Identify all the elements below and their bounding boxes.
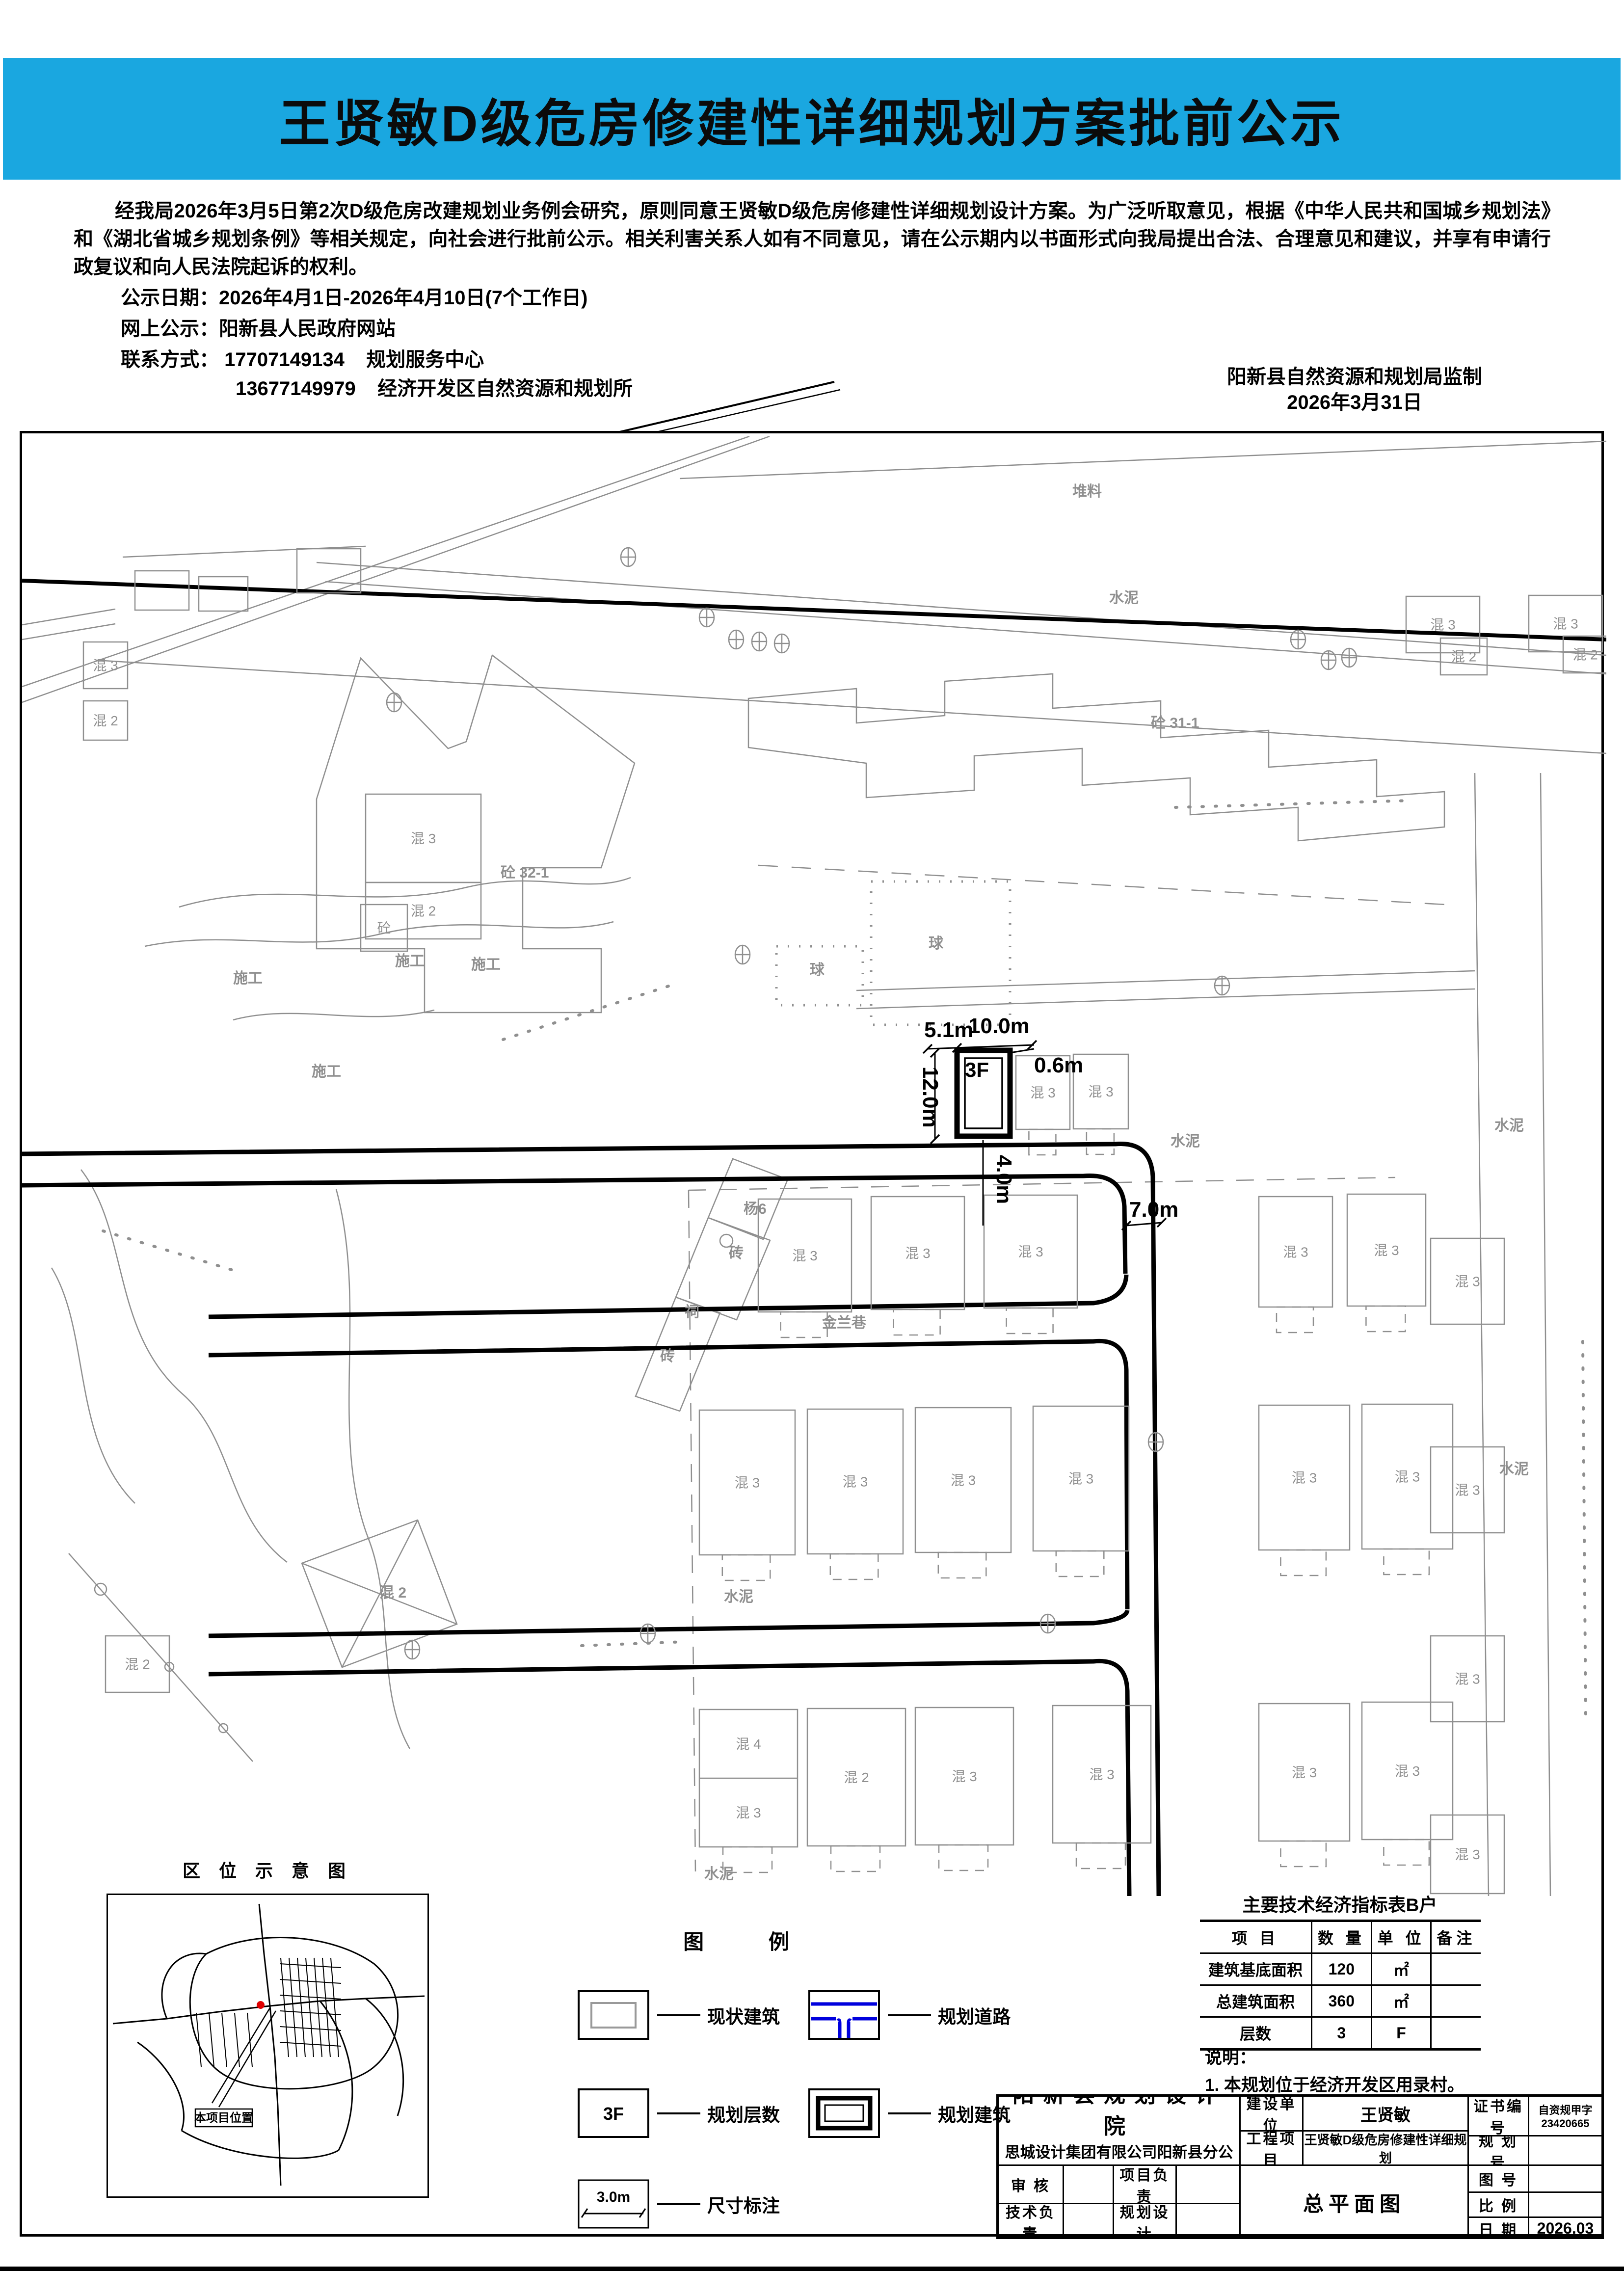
project-value: 王贤敏D级危房修建性详细规划	[1302, 2130, 1467, 2164]
utility-symbol	[735, 945, 750, 964]
building-label: 混 3	[1455, 1672, 1480, 1687]
existing-building-symbol	[577, 1989, 650, 2041]
location-diagram-title: 区 位 示 意 图	[150, 1857, 385, 1882]
fig-no-label: 图 号	[1467, 2164, 1528, 2191]
building-label: 混 3	[1430, 617, 1455, 633]
building-annex	[894, 1309, 940, 1335]
project-lead-value	[1175, 2164, 1239, 2203]
indicator-cell	[1431, 1985, 1481, 2017]
client-label: 建设单位	[1239, 2097, 1302, 2130]
building-annex	[1277, 1307, 1313, 1333]
utility-symbol	[1148, 1433, 1163, 1451]
building-annex	[1087, 1129, 1114, 1154]
dimension-text: 0.6m	[1034, 1053, 1083, 1077]
building-annex	[938, 1552, 986, 1578]
area-label: 砼 32-1	[501, 864, 549, 881]
building-label: 混 2	[93, 713, 118, 728]
legend-leader	[657, 2203, 700, 2205]
building-label: 混 2	[844, 1770, 869, 1785]
tech-lead-label: 技术负责	[999, 2203, 1063, 2239]
title-banner: 王贤敏D级危房修建性详细规划方案批前公示	[3, 58, 1621, 180]
legend-item-floors: 3F 规划层数	[577, 2087, 780, 2139]
building-label: 混 3	[1283, 1245, 1308, 1260]
boundary-line	[22, 581, 1606, 640]
building-label: 混 2	[411, 904, 436, 919]
indicator-cell: 360	[1311, 1985, 1371, 2017]
site-plan-canvas: 混 3混 2混 3混 2混 3混 2混 3混 2混 3混 3混 3混 3混 3混…	[22, 433, 1606, 1896]
building-label: 混 3	[1455, 1274, 1480, 1289]
planned-floor-label: 3F	[965, 1058, 989, 1081]
legend-item-planned-building: 规划建筑	[807, 2087, 1011, 2139]
utility-symbol	[752, 632, 767, 651]
building-annex	[1384, 1549, 1429, 1575]
project-location-label: 本项目位置	[194, 2111, 253, 2125]
legend-leader	[657, 2014, 700, 2016]
cert-value: 自资规甲字 23420665	[1528, 2097, 1601, 2135]
dimension-text: 12.0m	[918, 1067, 942, 1128]
building-label: 混 3	[735, 1475, 760, 1491]
utility-symbol	[405, 1640, 420, 1659]
area-label: 水泥	[1499, 1461, 1529, 1477]
utility-symbol	[1321, 651, 1336, 669]
existing-building	[199, 577, 248, 611]
contact-phone-1: 17707149134	[224, 349, 345, 371]
fig-no-value	[1528, 2164, 1601, 2191]
legend-label-dimension: 尺寸标注	[707, 2191, 780, 2217]
building-label: 混 3	[93, 658, 118, 673]
indicator-cell: 总建筑面积	[1200, 1985, 1311, 2017]
notice-page: 王贤敏D级危房修建性详细规划方案批前公示 经我局2026年3月5日第2次D级危房…	[0, 0, 1624, 2296]
indicator-cell: ㎡	[1371, 1953, 1431, 1985]
dimension-text: 7.0m	[1129, 1198, 1178, 1222]
building-label: 混 3	[736, 1805, 761, 1820]
building-annex	[831, 1846, 880, 1871]
area-label: 金兰巷	[822, 1314, 867, 1331]
building-label: 混 3	[1089, 1767, 1114, 1782]
svg-text:3.0m: 3.0m	[597, 2189, 630, 2205]
design-branch: 思城设计集团有限公司阳新县分公司	[999, 2140, 1239, 2164]
building-annex	[1056, 1551, 1104, 1576]
project-label: 工程项目	[1239, 2130, 1302, 2164]
drawing-sheet: 混 3混 2混 3混 2混 3混 2混 3混 2混 3混 3混 3混 3混 3混…	[20, 431, 1604, 2237]
cert-label: 证书编号	[1467, 2097, 1528, 2135]
review-value	[1063, 2164, 1113, 2203]
utility-symbol	[729, 630, 744, 649]
building-label: 混 3	[1455, 1483, 1480, 1498]
utility-symbol	[1040, 1614, 1055, 1633]
existing-building	[135, 571, 189, 610]
building-label: 混 3	[1455, 1847, 1480, 1862]
building-label: 混 3	[411, 831, 436, 846]
utility-symbol	[1291, 630, 1305, 649]
plan-design-value	[1175, 2203, 1239, 2239]
building-label: 混 2	[125, 1657, 150, 1672]
building-label: 混 3	[1395, 1763, 1420, 1779]
building-label: 混 3	[952, 1769, 977, 1784]
existing-linework	[22, 436, 1606, 1896]
legend-leader	[657, 2112, 700, 2114]
issue-date: 2026年3月31日	[1109, 390, 1600, 415]
building-label: 混 3	[843, 1474, 868, 1490]
area-label: 施工	[471, 957, 501, 973]
building-label: 混 3	[1030, 1085, 1055, 1100]
area-label: 水泥	[1494, 1118, 1524, 1134]
publicity-date-line: 公示日期：2026年4月1日-2026年4月10日(7个工作日)	[74, 284, 1551, 312]
planned-building-symbol	[807, 2087, 881, 2139]
building-annex	[1007, 1308, 1053, 1334]
notes: 说明： 1. 本规划位于经济开发区用录村。	[1205, 2044, 1597, 2099]
contact-org-1: 规划服务中心	[366, 349, 484, 371]
indicator-cell: 120	[1311, 1953, 1371, 1985]
web-publicity-line: 网上公示：阳新县人民政府网站	[74, 315, 1551, 343]
building-annex	[939, 1845, 988, 1870]
area-label: 祠	[685, 1304, 699, 1320]
building-annex	[781, 1312, 827, 1337]
indicator-header: 单 位	[1371, 1921, 1431, 1953]
building-label: 混 3	[951, 1473, 976, 1488]
ball-court-large	[871, 881, 1010, 1025]
building-annex	[1029, 1129, 1056, 1155]
area-label: 砖	[660, 1348, 675, 1364]
legend-label-existing: 现状建筑	[707, 2002, 780, 2029]
issuer-name: 阳新县自然资源和规划局监制	[1109, 364, 1600, 390]
page-bottom-edge	[0, 2267, 1624, 2271]
building-label: 混 3	[1553, 616, 1578, 632]
building-annex	[830, 1554, 879, 1579]
location-diagram: 本项目位置	[106, 1894, 429, 2198]
area-label: 水泥	[704, 1866, 734, 1882]
building-annex	[1280, 1550, 1326, 1575]
dimension-line	[1126, 1223, 1162, 1226]
building-label: 混 2	[1451, 649, 1476, 665]
issuer-block: 阳新县自然资源和规划局监制 2026年3月31日	[1109, 364, 1600, 415]
building-label: 混 3	[1088, 1084, 1113, 1099]
indicator-header: 数 量	[1311, 1921, 1371, 1953]
planned-roads	[22, 581, 1606, 1896]
dimension-text: 5.1m	[924, 1018, 973, 1042]
review-label: 审 核	[999, 2164, 1063, 2203]
area-label: 水泥	[724, 1589, 753, 1605]
utility-symbol	[640, 1624, 655, 1643]
area-label: 混 2	[379, 1585, 406, 1601]
legend-leader	[888, 2112, 931, 2114]
planned-road-symbol	[807, 1989, 881, 2041]
existing-building	[297, 549, 361, 593]
svg-text:3F: 3F	[603, 2104, 624, 2124]
legend-item-planned-road: 规划道路	[807, 1989, 1011, 2041]
area-label: 堆料	[1072, 483, 1102, 500]
building-annex	[1384, 1840, 1429, 1865]
date-value: 2026.03	[1528, 2216, 1601, 2239]
area-label: 施工	[233, 970, 263, 987]
indicator-cell: 建筑基底面积	[1200, 1953, 1311, 1985]
dimension-symbol: 3.0m	[577, 2178, 650, 2230]
building-annex	[1366, 1306, 1405, 1332]
area-label: 施工	[395, 953, 425, 969]
building-label: 混 3	[792, 1248, 817, 1263]
utility-symbol	[1215, 976, 1229, 995]
plan-no-value	[1528, 2135, 1601, 2164]
indicator-cell: ㎡	[1371, 1985, 1431, 2017]
dimension-text: 4.0m	[992, 1155, 1016, 1204]
legend-label-planned-road: 规划道路	[938, 2002, 1011, 2029]
area-label: 杨6	[744, 1201, 767, 1217]
indicator-row: 建筑基底面积120㎡	[1200, 1953, 1481, 1985]
scale-value	[1528, 2191, 1601, 2216]
building-label: 混 3	[1018, 1244, 1043, 1259]
legend-item-existing: 现状建筑	[577, 1989, 780, 2041]
building-label: 混 2	[1572, 647, 1597, 663]
indicator-cell	[1431, 1953, 1481, 1985]
design-institute: 阳新县规划设计院	[999, 2097, 1239, 2140]
legend-label-floors: 规划层数	[707, 2100, 780, 2127]
area-label: 施工	[312, 1064, 341, 1080]
building-label: 混 3	[1292, 1765, 1317, 1780]
indicator-header: 项 目	[1200, 1921, 1311, 1953]
utility-symbol	[387, 693, 401, 712]
tech-lead-value	[1063, 2203, 1113, 2239]
area-label: 水泥	[1171, 1133, 1200, 1149]
building-label: 砼	[377, 921, 391, 936]
building-annex	[722, 1555, 771, 1580]
notice-paragraph: 经我局2026年3月5日第2次D级危房改建规划业务例会研究，原则同意王贤敏D级危…	[74, 197, 1551, 281]
utility-symbol	[699, 608, 714, 627]
utility-symbol	[621, 548, 636, 566]
legend-title: 图 例	[645, 1925, 856, 1955]
indicator-table-title: 主要技术经济指标表B户	[1190, 1890, 1490, 1917]
page-title: 王贤敏D级危房修建性详细规划方案批前公示	[279, 82, 1344, 156]
building-annex	[1076, 1843, 1125, 1869]
building-label: 混 3	[905, 1246, 930, 1261]
client-value: 王贤敏	[1302, 2097, 1467, 2130]
notes-title: 说明：	[1205, 2044, 1597, 2072]
contact-phone-2: 13677149979	[236, 378, 356, 400]
area-label: 水泥	[1109, 590, 1139, 606]
dimension-text: 10.0m	[968, 1014, 1030, 1038]
legend-leader	[888, 2014, 931, 2016]
building-label: 混 3	[1374, 1243, 1399, 1258]
contact-label: 联系方式：	[121, 349, 219, 371]
indicator-row: 总建筑面积360㎡	[1200, 1985, 1481, 2017]
utility-symbol	[1342, 648, 1357, 667]
date-label: 日 期	[1467, 2216, 1528, 2239]
area-label: 砖	[729, 1245, 744, 1261]
building-label: 混 3	[1395, 1469, 1420, 1485]
project-lead-label: 项目负责	[1113, 2164, 1175, 2203]
scale-label: 比 例	[1467, 2191, 1528, 2216]
drawing-title: 总平面图	[1239, 2164, 1467, 2239]
legend-item-dimension: 3.0m 尺寸标注	[577, 2178, 780, 2230]
building-label: 混 3	[1292, 1470, 1317, 1486]
area-label: 球	[929, 935, 944, 952]
area-label: 砼 31-1	[1151, 715, 1199, 731]
design-institute-cell: 阳新县规划设计院 思城设计集团有限公司阳新县分公司	[999, 2097, 1239, 2164]
project-location-dot	[257, 2001, 265, 2009]
dimension-line	[1010, 1049, 1034, 1053]
building-label: 混 4	[736, 1736, 761, 1752]
indicator-header: 备注	[1431, 1921, 1481, 1953]
location-map-canvas: 本项目位置	[108, 1895, 427, 2196]
title-block: 阳新县规划设计院 思城设计集团有限公司阳新县分公司 审 核 项目负责 技术负责 …	[996, 2094, 1604, 2239]
building-label: 混 3	[1068, 1471, 1093, 1487]
area-label: 球	[810, 962, 825, 978]
plan-design-label: 规划设计	[1113, 2203, 1175, 2239]
utility-symbol	[774, 634, 789, 653]
planned-floors-symbol: 3F	[577, 2087, 650, 2139]
indicator-table: 项 目数 量单 位备注 建筑基底面积120㎡总建筑面积360㎡层数3F	[1200, 1920, 1481, 2051]
building-annex	[1280, 1841, 1326, 1867]
plan-no-label: 规 划 号	[1467, 2135, 1528, 2164]
